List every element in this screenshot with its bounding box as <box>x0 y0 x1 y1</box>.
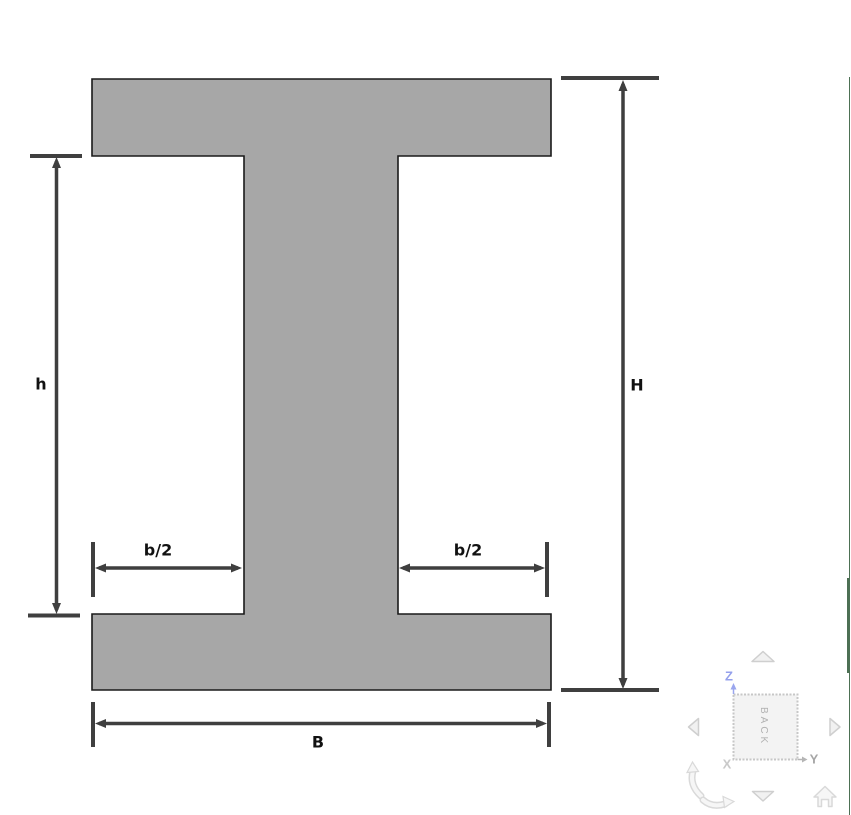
dimension-H <box>561 78 659 690</box>
dim-label-b2-left: b/2 <box>144 541 172 560</box>
cross-section-drawing <box>0 0 851 815</box>
dim-label-B: B <box>312 733 324 752</box>
i-beam-shape <box>92 79 551 690</box>
rotate-left-button[interactable] <box>689 719 699 736</box>
dim-label-b2-right: b/2 <box>454 541 482 560</box>
dim-label-H: H <box>630 376 643 395</box>
home-icon[interactable] <box>814 787 836 807</box>
y-axis-label: Y <box>810 752 819 767</box>
y-axis-arrow-icon <box>798 757 808 763</box>
x-axis-label: X <box>723 757 732 772</box>
scrollbar-track[interactable] <box>849 77 851 815</box>
dim-label-h: h <box>35 375 46 394</box>
drawing-canvas: h H b/2 b/2 B Z Y X BACK <box>0 0 851 815</box>
rotate-right-button[interactable] <box>830 719 840 736</box>
z-axis-label: Z <box>725 669 733 684</box>
scrollbar-thumb[interactable] <box>847 578 850 673</box>
rotate-down-button[interactable] <box>753 792 774 802</box>
viewcube-face-label[interactable]: BACK <box>758 707 769 746</box>
z-axis-arrow-icon <box>731 683 737 694</box>
rotate-up-button[interactable] <box>752 652 774 662</box>
